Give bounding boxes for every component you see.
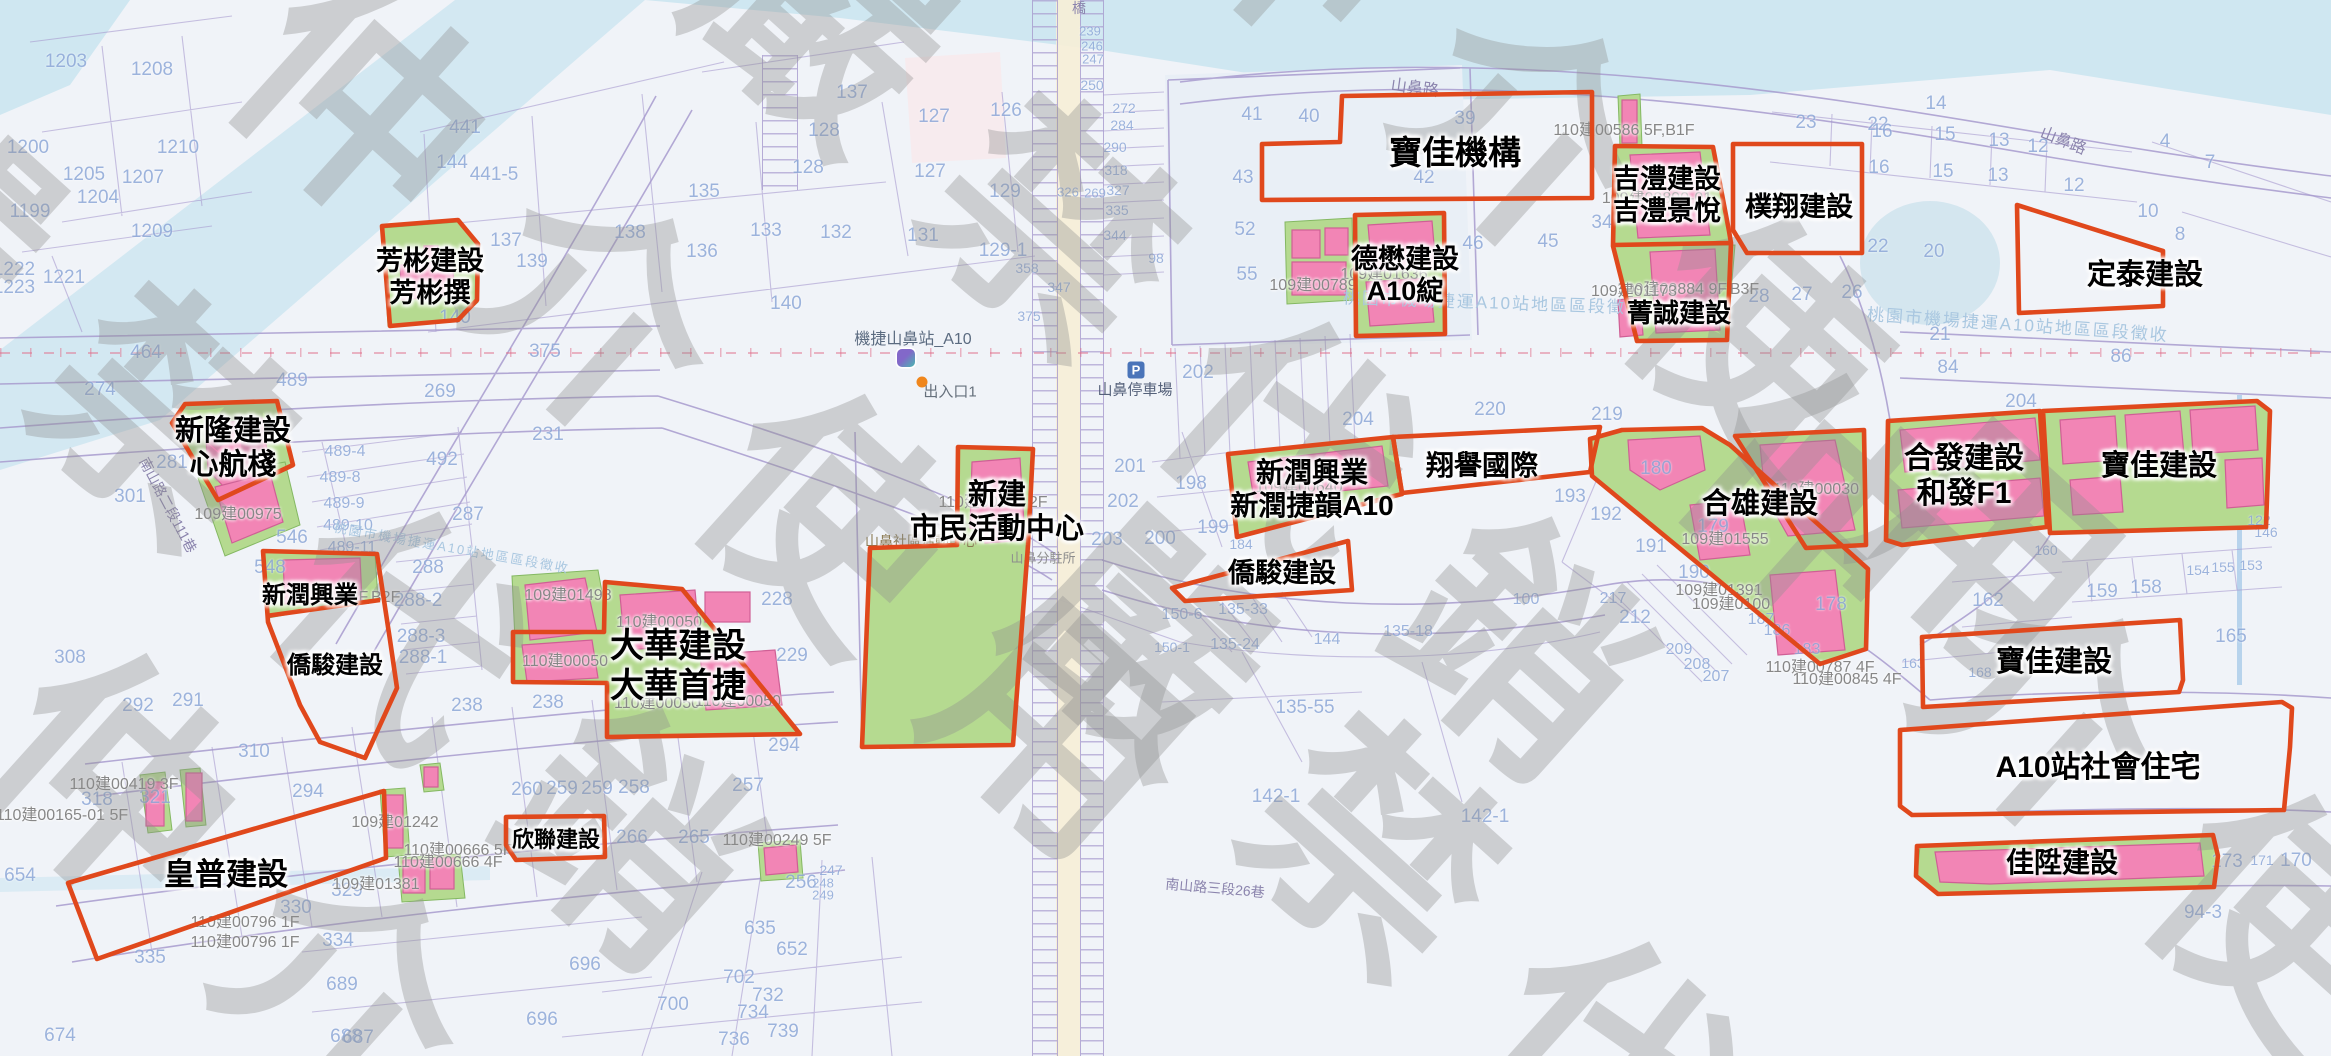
metro-track-west: [1032, 0, 1058, 1056]
bridge-structure: [762, 55, 798, 190]
metro-corridor-road: [1056, 0, 1080, 1056]
railway-ticks: [0, 348, 2331, 357]
metro-track-east: [1080, 0, 1104, 1056]
base-map-svg: [0, 0, 2331, 1056]
cadastral-map: 機捷山鼻站_A10 出入口1 P 山鼻停車場 山鼻社區活動中心 山鼻分駐所 12…: [0, 0, 2331, 1056]
